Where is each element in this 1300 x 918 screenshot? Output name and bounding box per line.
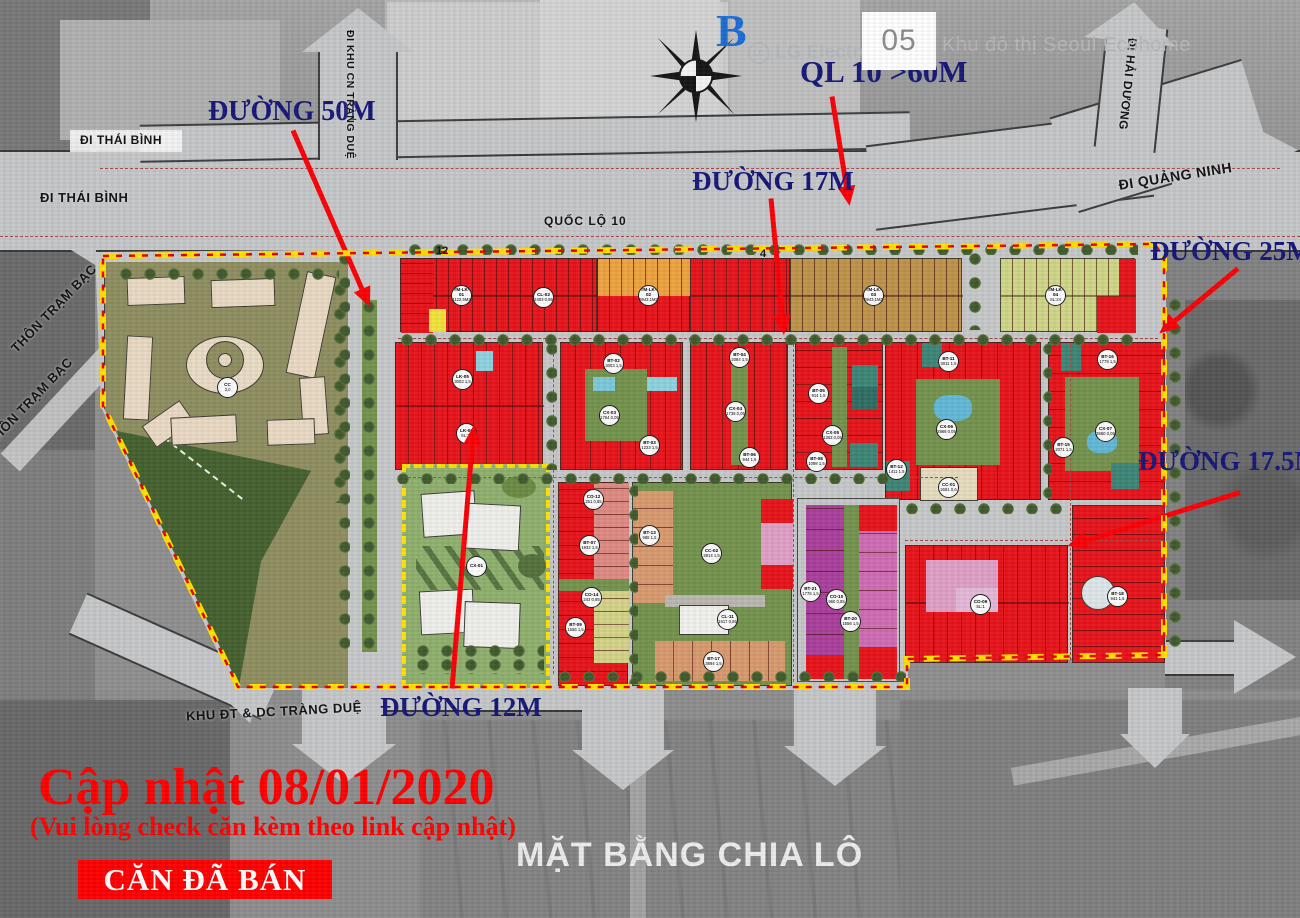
block-co-09: CO-09SL:1 <box>905 545 1068 663</box>
lot-cell <box>850 443 878 467</box>
block-badge: BT-18941 1,5 <box>1107 586 1128 607</box>
block-badge: BT-113011 1,5 <box>938 351 959 372</box>
tree-row <box>545 342 557 470</box>
tree-row <box>628 484 638 684</box>
sold-legend-text: CĂN ĐÃ BÁN <box>104 862 307 898</box>
tree-row <box>1042 342 1052 500</box>
lot-cell <box>463 503 521 552</box>
road-width-marker-4: 4 <box>760 248 766 260</box>
block-cc-02: BT-13988 1,5CC-022814 1,5CL-111917 0,85B… <box>632 482 792 686</box>
label-di-thai-binh-top: ĐI THÁI BÌNH <box>80 133 162 147</box>
block-badge: BT-05914 1,5 <box>808 383 829 404</box>
lot-cell <box>934 395 972 421</box>
plan-title: MẶT BẰNG CHIA LÔ <box>516 836 863 875</box>
update-title: Cập nhật 08/01/2020 <box>38 758 495 817</box>
block-badge: BT-091556 1,5 <box>565 617 586 638</box>
block-bt-04: BT-042084 1,5CX-041739 0,05BT-06944 1,5 <box>690 342 788 470</box>
lot-cell <box>429 309 446 332</box>
lot-cell <box>416 644 544 674</box>
lot-cell <box>806 505 844 655</box>
tree-row <box>905 502 1063 514</box>
label-di-thai-binh-main: ĐI THÁI BÌNH <box>40 190 128 205</box>
lot-cell <box>1119 259 1136 296</box>
lot-cell <box>593 377 615 391</box>
compass-north-label: B <box>716 4 747 57</box>
label-di-kcn-trang-due: ĐI KHU CN TRÀNG DUỆ <box>344 30 356 210</box>
villa-parcel: CX-01 <box>402 464 550 688</box>
lot-cell <box>832 347 847 467</box>
block-badge: CC-012691 0,6 <box>938 477 959 498</box>
road-centerline <box>905 540 1163 541</box>
block-badge: CC-022814 1,5 <box>701 543 722 564</box>
label-duong-12m: ĐƯỜNG 12M <box>380 692 542 723</box>
page-number-box: 05 <box>862 12 936 70</box>
road-centerline <box>793 344 794 682</box>
lot-cell <box>1061 343 1081 371</box>
lot-cell <box>286 271 337 379</box>
lot-cell <box>926 588 956 612</box>
lot-cell <box>123 335 153 420</box>
lot-cell <box>1097 296 1136 333</box>
block-badge: BT-211776 1,5 <box>800 581 821 602</box>
block-badge: TM-LK-025943,1M2 <box>638 285 659 306</box>
lot-cell <box>852 365 878 387</box>
block-badge: CO-10960 0,85 <box>826 589 847 610</box>
tree-row <box>558 670 906 682</box>
lot-cell <box>844 505 859 679</box>
block-badge: BT-161779 1,5 <box>1097 349 1118 370</box>
lot-cell <box>396 405 544 407</box>
block-badge: CC3,0 <box>217 377 238 398</box>
lot-row-d: TM-LK-035943,1M2 <box>790 258 962 332</box>
block-badge: CX-062866 0,05 <box>936 419 957 440</box>
annotation-arrow-line <box>1173 267 1240 323</box>
block-badge: CX-041739 0,05 <box>725 401 746 422</box>
block-badge: CX-031764 0,05 <box>599 405 620 426</box>
block-badge: LK-053003 1,5 <box>452 369 473 390</box>
road-median-50m <box>362 300 377 652</box>
lot-cell <box>115 423 315 689</box>
apartment-parcel: CC3,0 <box>104 252 350 690</box>
block-badge: TM-LK-035943,1M2 <box>863 285 884 306</box>
lot-cell <box>916 379 1000 465</box>
block-badge: CO-14243 0,85 <box>581 587 602 608</box>
block-bt-02: BT-023003 1,5CX-031764 0,05BT-031223 1,5 <box>560 342 683 470</box>
block-badge: BT-173894 1,5 <box>703 651 724 672</box>
lot-cell <box>647 377 677 391</box>
tree-row <box>400 333 1140 345</box>
lot-cell <box>170 414 237 445</box>
lot-cell <box>119 267 339 281</box>
block-bt-21: BT-211776 1,5CO-10960 0,85BT-201556 1,5 <box>797 498 900 682</box>
road-centerline <box>1070 344 1071 660</box>
lot-cell <box>859 505 897 531</box>
road-width-marker-12: 12 <box>436 245 448 257</box>
project-title: Khu đô thị Seoul Ecohome <box>942 34 1191 57</box>
block-badge: BT-042084 1,5 <box>729 347 750 368</box>
lot-row-b: TM-LK-025943,1M2 <box>597 258 690 332</box>
lot-cell <box>1111 463 1139 489</box>
block-badge: CX-073860 0,05 <box>1095 421 1116 442</box>
block-badge: CL-022403 0,85 <box>533 287 554 308</box>
lot-cell <box>852 387 878 409</box>
block-badge: CO-09SL:1 <box>970 594 991 615</box>
block-badge: BT-152071 1,5 <box>1053 437 1074 458</box>
lot-cell <box>463 601 521 649</box>
lot-cell <box>218 353 232 367</box>
lot-cell <box>859 531 897 647</box>
lot-cell <box>1001 295 1136 297</box>
lot-cell <box>518 554 546 578</box>
block-badge: CX-051363 0,05 <box>822 425 843 446</box>
label-duong-17m: ĐƯỜNG 17M <box>692 166 854 197</box>
lot-cell <box>267 418 316 446</box>
tree-row <box>338 252 350 652</box>
label-duong-25m: ĐƯỜNG 25M <box>1150 236 1300 267</box>
label-quoc-lo-10: QUỐC LỘ 10 <box>544 214 627 228</box>
label-duong-17-5m: ĐƯỜNG 17.5M <box>1138 446 1300 477</box>
block-badge: BT-06944 1,5 <box>739 447 760 468</box>
lot-cell <box>211 278 276 308</box>
lot-cell <box>761 499 793 523</box>
block-badge: BT-13988 1,5 <box>639 525 660 546</box>
block-bt-05: BT-05914 1,5CX-051363 0,05BT-081098 1,5 <box>795 342 883 470</box>
block-badge: BT-121411 1,5 <box>886 459 907 480</box>
lot-cell <box>926 560 998 588</box>
block-badge: BT-071932 1,5 <box>579 535 600 556</box>
lot-cell <box>761 523 793 565</box>
lot-cell <box>761 565 793 589</box>
lot-cell <box>633 491 673 603</box>
lot-row-e: TM-LK-04SL:24 <box>1000 258 1135 332</box>
road-centerline <box>100 168 1280 169</box>
block-badge: CX-01 <box>466 556 487 577</box>
road-centerline <box>0 236 1300 237</box>
block-co-12: CO-12251 0,85BT-071932 1,5CO-14243 0,85B… <box>558 482 628 686</box>
lot-row-a: TM-LK-011122,5M2CL-022403 0,85 <box>400 258 597 332</box>
block-badge: BT-201556 1,5 <box>840 611 861 632</box>
sold-legend-badge: CĂN ĐÃ BÁN <box>78 860 332 899</box>
update-note: (Vui lòng check căn kèm theo link cập nh… <box>30 812 516 842</box>
page-number: 05 <box>881 24 916 58</box>
master-plan-map: LG LG Electronics TM-LK-011122,5M2CL-022… <box>0 0 1300 918</box>
block-badge: BT-023003 1,5 <box>603 353 624 374</box>
block-badge: CL-111917 0,85 <box>717 609 738 630</box>
block-badge: CO-12251 0,85 <box>583 489 604 510</box>
block-badge: BT-081098 1,5 <box>806 451 827 472</box>
block-badge: TM-LK-011122,5M2 <box>451 285 472 306</box>
lot-cell <box>691 295 791 297</box>
block-badge: TM-LK-04SL:24 <box>1045 285 1066 306</box>
block-badge: BT-031223 1,5 <box>639 435 660 456</box>
lot-cell <box>476 351 493 371</box>
tree-row <box>968 252 982 330</box>
